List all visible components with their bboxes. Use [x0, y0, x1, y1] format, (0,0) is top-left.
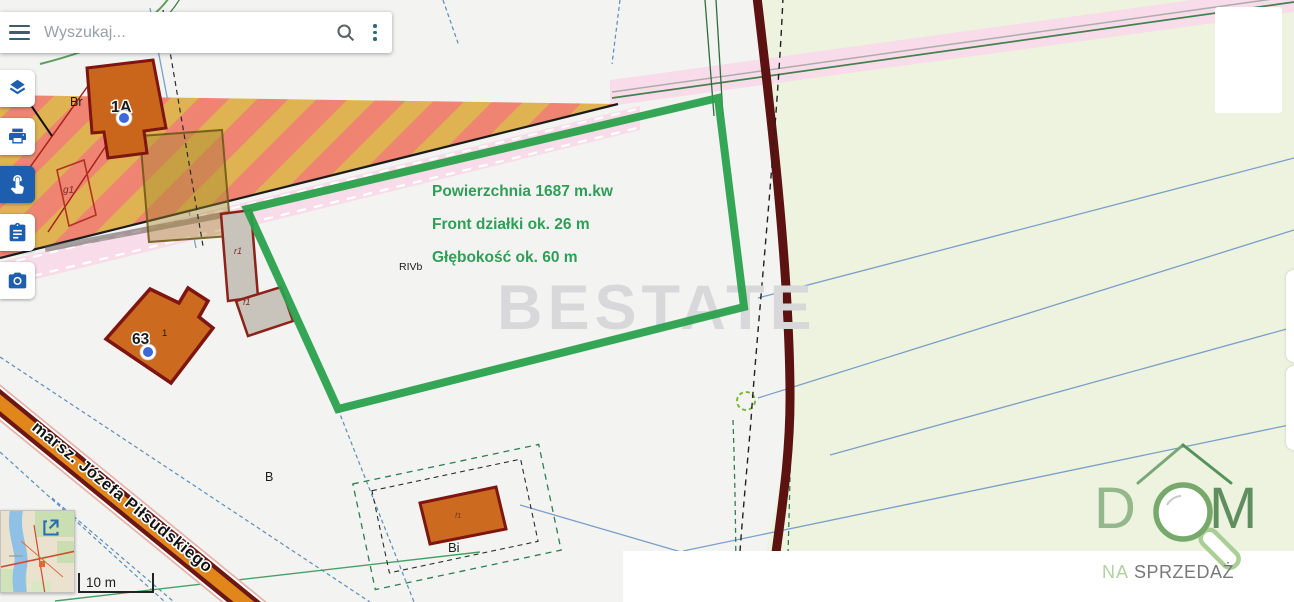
- layers-button[interactable]: [0, 70, 35, 107]
- map-viewer: BESTATE marsz. Józefa Piłsudskiego Br 1A…: [0, 0, 1294, 602]
- label-bi: Bi: [448, 540, 460, 555]
- expand-minimap-icon[interactable]: [40, 517, 61, 538]
- field-area: [754, 0, 1294, 602]
- minimap-content: [1, 511, 75, 593]
- edge-panel-tab[interactable]: [1286, 366, 1294, 450]
- map-canvas[interactable]: BESTATE marsz. Józefa Piłsudskiego Br 1A…: [0, 0, 1294, 602]
- label-63-sup: 1: [162, 328, 167, 339]
- scale-label: 10 m: [86, 575, 116, 590]
- label-f1: f1: [243, 297, 251, 307]
- search-input[interactable]: [38, 24, 328, 42]
- bottom-attribution-cover: [623, 551, 1294, 602]
- search-icon[interactable]: [328, 12, 362, 53]
- label-bi-inner: f1: [455, 511, 461, 520]
- label-r1: r1: [234, 246, 242, 256]
- screenshot-button[interactable]: [0, 262, 35, 299]
- more-options-icon[interactable]: [362, 12, 388, 53]
- select-tool-button[interactable]: [0, 166, 35, 203]
- annotation-front: Front działki ok. 26 m: [432, 216, 590, 234]
- layers-icon: [7, 78, 28, 99]
- top-right-cover: [1215, 7, 1282, 113]
- touch-pointer-icon: [7, 174, 28, 195]
- menu-icon[interactable]: [0, 12, 38, 53]
- report-button[interactable]: [0, 214, 35, 251]
- edge-panel-tab[interactable]: [1286, 270, 1294, 362]
- clipboard-icon: [7, 222, 28, 243]
- label-soil-rivb: RIVb: [399, 261, 423, 273]
- print-button[interactable]: [0, 118, 35, 155]
- overview-minimap[interactable]: [0, 510, 75, 593]
- label-g1: g1: [63, 185, 74, 196]
- camera-icon: [7, 270, 28, 291]
- annotation-depth: Głębokość ok. 60 m: [432, 249, 578, 267]
- annotation-area: Powierzchnia 1687 m.kw: [432, 183, 613, 201]
- label-br: Br: [70, 95, 83, 109]
- search-bar: [0, 12, 392, 53]
- building-outline-olive: [140, 130, 231, 242]
- label-b: B: [265, 470, 273, 484]
- printer-icon: [7, 126, 28, 147]
